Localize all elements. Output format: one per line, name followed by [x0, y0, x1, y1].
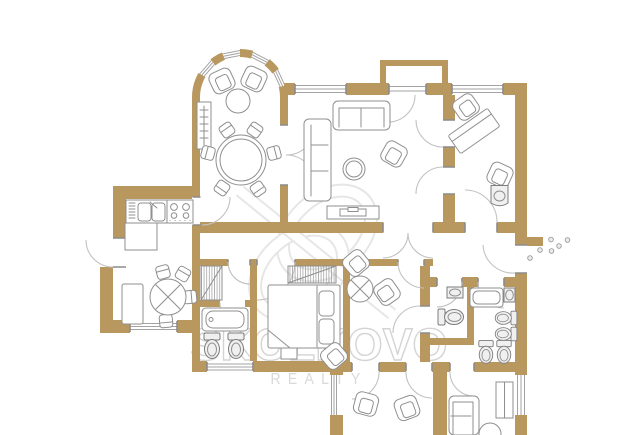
washbasin-icon — [447, 287, 463, 298]
armchair-icon — [239, 64, 269, 94]
room-bath-2 — [438, 287, 517, 363]
toilet-icon — [204, 333, 220, 359]
stove-icon — [167, 200, 193, 223]
window-top-right — [452, 86, 503, 93]
room-dining — [122, 264, 197, 328]
side-table-icon — [226, 89, 250, 113]
pouf-icon — [343, 158, 365, 180]
door-balcony — [388, 95, 415, 122]
washbasin-icon — [504, 288, 515, 302]
armchair-icon — [352, 390, 380, 417]
door-room-b — [450, 372, 474, 396]
door-closet — [228, 262, 250, 284]
wardrobe-icon — [496, 382, 513, 418]
armchair-icon — [379, 139, 410, 170]
armchair-icon — [392, 394, 421, 423]
wardrobe-icon — [201, 266, 222, 300]
room-bay — [197, 64, 282, 198]
round-table-icon — [347, 276, 373, 302]
door-exterior-left — [86, 240, 113, 267]
floor-plan-svg: SKOLKOVO REALTY — [0, 0, 640, 435]
balcony-door-threshold — [389, 87, 426, 92]
watermark-tagline: REALTY — [271, 371, 368, 388]
toilet-icon — [438, 309, 464, 325]
dining-table-icon — [200, 121, 282, 198]
toilet-icon — [228, 333, 244, 359]
toilet-icon — [479, 340, 493, 363]
corner-sink-icon — [491, 186, 508, 206]
chair-icon — [155, 264, 171, 280]
chair-icon — [174, 265, 192, 283]
door-entrance — [483, 245, 515, 273]
shelf-unit-icon — [197, 102, 211, 149]
sofa-icon — [304, 119, 331, 201]
round-table-icon — [479, 423, 501, 435]
bench-icon — [281, 348, 297, 359]
chair-icon — [159, 314, 173, 328]
door-living-double-2 — [408, 233, 433, 258]
sofa-icon — [449, 396, 479, 435]
fridge-icon — [125, 223, 157, 250]
bidet-icon — [495, 327, 517, 341]
sofa-icon — [333, 101, 390, 130]
wardrobe-icon — [288, 266, 336, 283]
bathtub-icon — [202, 308, 248, 331]
room-office — [448, 91, 515, 205]
door-kitchen — [202, 197, 230, 225]
bed-icon — [268, 285, 340, 348]
media-console-icon — [327, 206, 379, 219]
window-top-left — [295, 86, 346, 93]
door-office-left-2 — [416, 167, 443, 194]
floor-plan: SKOLKOVO REALTY — [0, 0, 640, 435]
door-living-double-1 — [383, 233, 408, 258]
room-kitchen — [125, 200, 193, 250]
bidet-icon — [497, 340, 511, 363]
round-table-icon — [150, 279, 186, 315]
bathtub-icon — [470, 288, 503, 307]
bench-icon — [122, 284, 143, 324]
window-right-wall — [518, 375, 525, 415]
toilet-icon — [495, 311, 517, 325]
door-office-left-1 — [416, 120, 443, 147]
door-room-a-2 — [406, 372, 432, 398]
room-a — [352, 390, 422, 422]
